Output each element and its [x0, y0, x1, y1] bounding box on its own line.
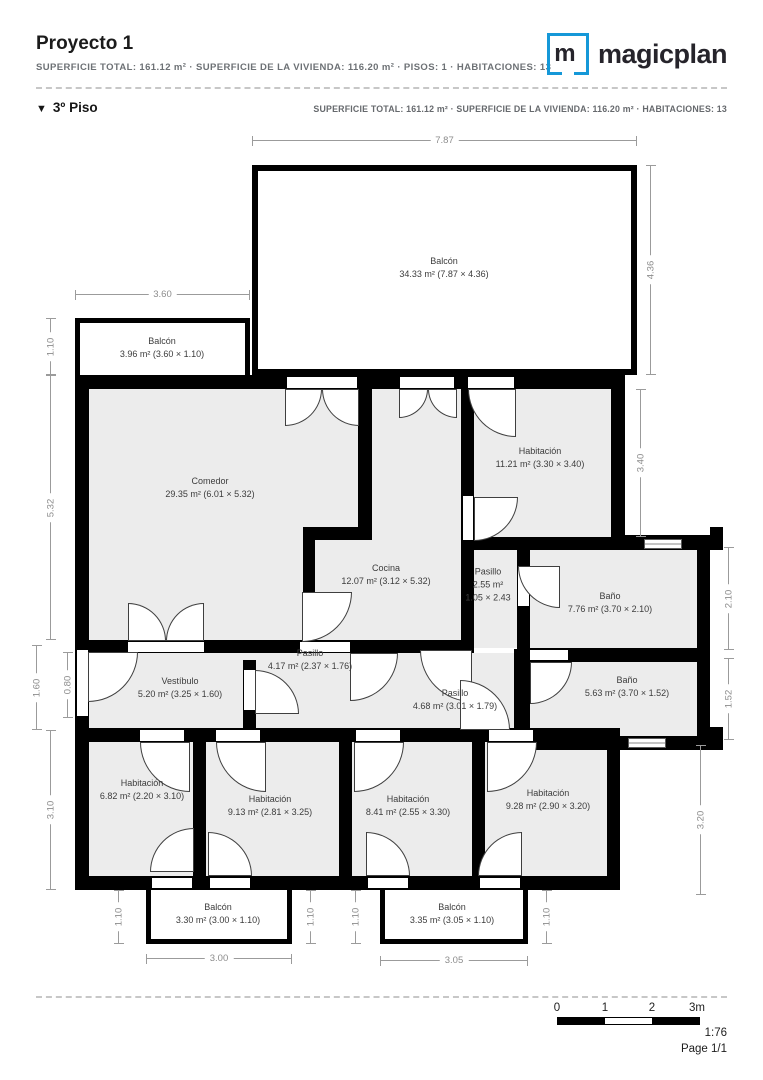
- opening-bano-bottom-door: [530, 650, 568, 660]
- room-label-habitacion-s3: Habitación8.41 m² (2.55 × 3.30): [366, 793, 450, 819]
- window-bano-bottom: [628, 738, 666, 748]
- room-label-pasillo-mid: Pasillo4.17 m² (2.37 × 1.76): [268, 647, 352, 673]
- room-label-cocina: Cocina12.07 m² (3.12 × 5.32): [341, 562, 430, 588]
- scale-tick-0: 0: [554, 1002, 560, 1014]
- opening-balcony-s2-a: [368, 878, 408, 888]
- footer-divider: [36, 996, 727, 998]
- dim-balcony-left-width: 3.60: [75, 294, 250, 295]
- room-label-comedor: Comedor29.35 m² (6.01 × 5.32): [165, 475, 254, 501]
- dim-entrance-width: 0.80: [67, 652, 68, 718]
- room-label-balcon-s2: Balcón3.35 m² (3.05 × 1.10): [410, 901, 494, 927]
- scale-bar: [557, 1017, 700, 1025]
- dim-balcony-left-height: 1.10: [50, 318, 51, 375]
- wall-right-lower: [607, 742, 620, 890]
- opening-bedroom-sw: [140, 730, 184, 741]
- floor-label: ▼3º Piso: [36, 100, 98, 115]
- magicplan-logo: m magicplan: [547, 33, 727, 75]
- page-indicator: Page 1/1: [681, 1043, 727, 1055]
- room-label-balcon-left: Balcón3.96 m² (3.60 × 1.10): [120, 335, 204, 361]
- wall-bedroom-div1: [193, 742, 206, 890]
- magicplan-logo-text: magicplan: [598, 39, 727, 70]
- room-label-habitacion-ne: Habitación11.21 m² (3.30 × 3.40): [496, 445, 585, 471]
- wall-left: [75, 375, 89, 890]
- wall-bedroom-div2: [339, 742, 352, 890]
- window-bano-top: [644, 539, 682, 549]
- floor-summary: SUPERFICIE TOTAL: 161.12 m² · SUPERFICIE…: [313, 104, 727, 114]
- dim-bano-bottom-height: 1.52: [728, 658, 729, 740]
- room-label-pasillo-small: Pasillo2.55 m²1.05 × 2.43: [465, 565, 510, 604]
- room-label-bano-top: Baño7.76 m² (3.70 × 2.10): [568, 590, 652, 616]
- dim-balcony-s1-width: 3.00: [146, 958, 292, 959]
- dim-balcony-s2-left: 1.10: [355, 890, 356, 944]
- floor-marker-icon: ▼: [36, 103, 47, 115]
- opening-balcony-comedor: [287, 377, 357, 388]
- magicplan-logo-icon: m: [547, 33, 589, 75]
- wall-comedor-cocina-upper: [358, 389, 372, 540]
- wall-bano-right: [697, 535, 710, 750]
- opening-bedroom-s3: [356, 730, 400, 741]
- scale-bar-segment: [558, 1018, 605, 1024]
- opening-balcony-s1-a: [152, 878, 192, 888]
- room-label-balcon-s1: Balcón3.30 m² (3.00 × 1.10): [176, 901, 260, 927]
- dim-balcony-top-height: 4.36: [650, 165, 651, 375]
- room-label-bano-bottom: Baño5.63 m² (3.70 × 1.52): [585, 674, 669, 700]
- scale-tick-2: 2: [649, 1002, 655, 1014]
- opening-balcony-s1-b: [210, 878, 250, 888]
- opening-balcony-habne: [468, 377, 514, 388]
- dim-habitacion-ne-height: 3.40: [640, 389, 641, 537]
- dim-bedrooms-se-height: 3.20: [700, 745, 701, 895]
- dim-balcony-s1-left: 1.10: [118, 890, 119, 944]
- wall-cocina-step: [303, 527, 372, 540]
- opening-comedor-vestibulo: [128, 642, 204, 652]
- wall-window-nub-bottom: [710, 727, 723, 750]
- dim-bano-top-height: 2.10: [728, 547, 729, 650]
- opening-bedroom-s2: [216, 730, 260, 741]
- project-summary: SUPERFICIE TOTAL: 161.12 m² · SUPERFICIE…: [36, 62, 551, 73]
- scale-tick-3m: 3m: [689, 1002, 705, 1014]
- header-divider: [36, 87, 727, 89]
- opening-entrance: [77, 650, 88, 716]
- room-label-vestibulo: Vestíbulo5.20 m² (3.25 × 1.60): [138, 675, 222, 701]
- opening-habne-door: [463, 496, 473, 540]
- wall-window-nub-top: [710, 527, 723, 550]
- opening-bedroom-se: [489, 730, 533, 741]
- room-label-habitacion-s2: Habitación9.13 m² (2.81 × 3.25): [228, 793, 312, 819]
- floorplan-page: Proyecto 1 SUPERFICIE TOTAL: 161.12 m² ·…: [0, 0, 763, 1080]
- room-fill-comedor: [89, 389, 303, 640]
- scale-tick-1: 1: [602, 1002, 608, 1014]
- dim-balcony-s2-right: 1.10: [546, 890, 547, 944]
- dim-vestibulo-height: 1.60: [36, 645, 37, 730]
- opening-balcony-s2-b: [480, 878, 520, 888]
- wall-right-upper: [611, 375, 625, 550]
- dim-balcony-top-width: 7.87: [252, 140, 637, 141]
- room-label-habitacion-sw: Habitación6.82 m² (2.20 × 3.10): [100, 777, 184, 803]
- room-label-habitacion-se: Habitación9.28 m² (2.90 × 3.20): [506, 787, 590, 813]
- dim-balcony-s2-width: 3.05: [380, 960, 528, 961]
- dim-bedrooms-sw-height: 3.10: [50, 730, 51, 890]
- scale-bar-segment: [652, 1018, 699, 1024]
- room-label-balcon-top: Balcón34.33 m² (7.87 × 4.36): [399, 255, 488, 281]
- dim-comedor-height: 5.32: [50, 375, 51, 640]
- scale-ratio: 1:76: [705, 1027, 727, 1039]
- room-label-pasillo-lower: Pasillo4.68 m² (3.01 × 1.79): [413, 687, 497, 713]
- project-title: Proyecto 1: [36, 33, 133, 55]
- opening-vestibulo-pasillo: [244, 670, 255, 710]
- opening-balcony-cocina: [400, 377, 454, 388]
- dim-balcony-s1-right: 1.10: [310, 890, 311, 944]
